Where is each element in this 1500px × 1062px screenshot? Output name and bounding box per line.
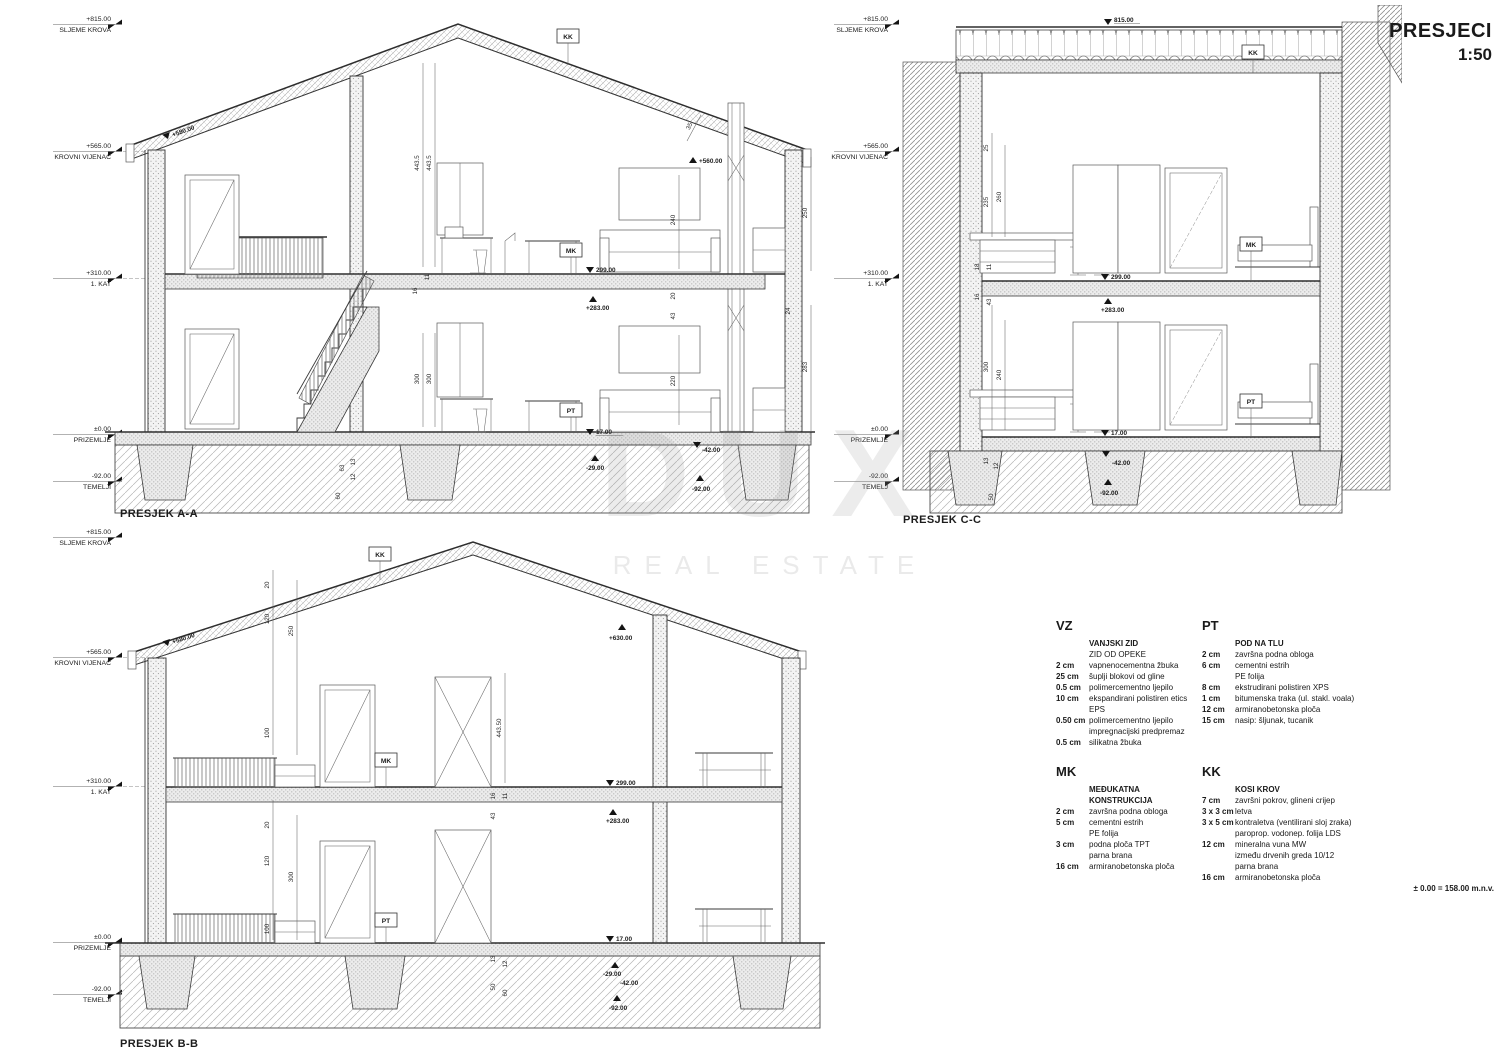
legend-dim xyxy=(1202,638,1235,649)
legend-text: vapnenocementna žbuka xyxy=(1089,660,1202,671)
level-label: TEMELJ xyxy=(862,484,888,491)
bed xyxy=(175,914,275,943)
level-value: +815.00 xyxy=(86,16,111,23)
dim-label: 283 xyxy=(802,361,809,372)
legend-dim: 15 cm xyxy=(1202,715,1235,726)
dim-label: 100 xyxy=(264,923,271,934)
level-label: PRIZEMLJE xyxy=(851,437,889,444)
section-aa: +815.00 SLJEME KROVA +565.00 KROVNI VIJE… xyxy=(45,5,820,522)
title-block: PRESJECI 1:50 xyxy=(1389,20,1492,65)
legend-block-kk: KK KOSI KROV 7 cmzavršni pokrov, glineni… xyxy=(1202,764,1384,883)
dim-label: 100 xyxy=(264,727,271,738)
dim-label: 250 xyxy=(288,625,295,636)
aa-chimney xyxy=(728,103,744,437)
wall-panel xyxy=(619,168,700,220)
dim-label: 235 xyxy=(983,196,990,207)
tag-kk: KK xyxy=(1248,50,1258,57)
legend-dim xyxy=(1056,649,1089,660)
dim-label: 12 xyxy=(993,462,1000,469)
dim-label: 11 xyxy=(502,792,509,799)
spot-elevation: +283.00 xyxy=(606,818,630,825)
spot-elevation: 815.00 xyxy=(1114,17,1134,24)
level-label: 1. KAT xyxy=(868,281,888,288)
level-label: SLJEME KROVA xyxy=(59,27,111,34)
legend-text: ekspandirani polistiren etics EPS xyxy=(1089,693,1202,715)
dim-label: 43 xyxy=(490,812,497,819)
dim-label: 11 xyxy=(424,273,431,280)
glazed-door xyxy=(435,830,491,943)
spot-elevation: -92.00 xyxy=(1100,490,1119,497)
sofa xyxy=(600,390,720,432)
cc-roof-tiles xyxy=(956,30,1342,60)
dim-label: 443.5 xyxy=(426,155,433,171)
legend-text: završni pokrov, glineni crijep xyxy=(1235,795,1384,806)
dim-label: 220 xyxy=(670,375,677,386)
legend-text: ZID OD OPEKE xyxy=(1089,649,1202,660)
material-legend: VZ VANJSKI ZID ZID OD OPEKE 2 cmvapnenoc… xyxy=(1056,618,1384,883)
legend-text: letva xyxy=(1235,806,1384,817)
legend-text: parna brana xyxy=(1235,861,1384,872)
sheet-title: PRESJECI xyxy=(1389,20,1492,43)
dim-label: 443.50 xyxy=(496,718,503,737)
legend-dim: 12 cm xyxy=(1202,704,1235,715)
table xyxy=(695,753,773,787)
legend-dim: 7 cm xyxy=(1202,795,1235,806)
legend-dim: 25 cm xyxy=(1056,671,1089,682)
stool xyxy=(470,409,487,432)
legend-dim: 2 cm xyxy=(1056,806,1089,817)
legend-dim: 12 cm xyxy=(1202,839,1235,850)
dim-label: 63 xyxy=(339,464,346,471)
legend-text: bitumenska traka (ul. stakl. voala) xyxy=(1235,693,1384,704)
aa-roof xyxy=(126,24,811,167)
dim-label: 60 xyxy=(335,492,342,499)
spot-elevation: 299.00 xyxy=(596,267,616,274)
spot-elevation: 17.00 xyxy=(1111,430,1127,437)
level-label: KROVNI VIJENAC xyxy=(54,154,111,161)
stool xyxy=(470,250,487,273)
tag-mk: MK xyxy=(566,248,576,255)
dim-label: 16 xyxy=(412,287,419,294)
bed xyxy=(175,758,275,787)
legend-dim: 3 cm xyxy=(1056,839,1089,850)
dim-label: 43 xyxy=(670,312,677,319)
legend-text: kontraletva (ventilirani sloj zraka) xyxy=(1235,817,1384,828)
legend-text: podna ploča TPT xyxy=(1089,839,1202,850)
bb-furniture-upper xyxy=(173,677,773,787)
spot-elevation: -42.00 xyxy=(620,980,639,987)
legend-dim: 3 x 3 cm xyxy=(1202,806,1235,817)
cc-furniture-upper xyxy=(970,165,1320,275)
dim-label: 25 xyxy=(983,144,990,151)
legend-text: paroprop. vodonep. folija LDS xyxy=(1235,828,1384,839)
legend-dim xyxy=(1056,726,1089,737)
legend-text: šuplji blokovi od gline xyxy=(1089,671,1202,682)
dim-label: 16 xyxy=(490,792,497,799)
legend-dim: 1 cm xyxy=(1202,693,1235,704)
legend-dim: 0.5 cm xyxy=(1056,682,1089,693)
level-value: +310.00 xyxy=(86,270,111,277)
dim-label: 43 xyxy=(986,298,993,305)
cc-roof: 815.00 xyxy=(956,17,1342,73)
legend-text: između drvenih greda 10/12 xyxy=(1235,850,1384,861)
spot-elevation: -92.00 xyxy=(609,1005,628,1012)
tall-cabinet xyxy=(1073,322,1118,430)
sofa xyxy=(600,230,720,272)
legend-text: mineralna vuna MW xyxy=(1235,839,1384,850)
table xyxy=(695,909,773,943)
dim-label: 300 xyxy=(426,373,433,384)
tag-mk: MK xyxy=(381,758,391,765)
sheet-scale: 1:50 xyxy=(1389,45,1492,65)
legend-dim: 10 cm xyxy=(1056,693,1089,715)
dim-label: 20 xyxy=(670,292,677,299)
legend-text: ekstrudirani polistiren XPS xyxy=(1235,682,1384,693)
level-value: ±0.00 xyxy=(871,426,888,433)
dim-label: 13 xyxy=(350,458,357,465)
section-caption: PRESJEK B-B xyxy=(120,1038,198,1050)
dim-label: 120 xyxy=(264,855,271,866)
cc-furniture-ground xyxy=(970,322,1320,432)
legend-dim xyxy=(1056,784,1089,806)
dim-label: 13 xyxy=(983,457,990,464)
dim-label: 240 xyxy=(996,369,1003,380)
legend-dim xyxy=(1202,861,1235,872)
legend-block-vz: VZ VANJSKI ZID ZID OD OPEKE 2 cmvapnenoc… xyxy=(1056,618,1202,748)
legend-dim xyxy=(1202,784,1235,795)
legend-code: KK xyxy=(1202,764,1384,779)
legend-code: MK xyxy=(1056,764,1202,779)
dim-label: 12 xyxy=(350,473,357,480)
bb-furniture-ground xyxy=(173,830,773,943)
level-value: +565.00 xyxy=(86,143,111,150)
legend-text: POD NA TLU xyxy=(1235,638,1384,649)
level-value: -92.00 xyxy=(92,986,111,993)
spot-elevation: 299.00 xyxy=(1111,274,1131,281)
section-cc: +815.00 SLJEME KROVA +565.00 KROVNI VIJE… xyxy=(830,5,1402,527)
level-value: -92.00 xyxy=(92,473,111,480)
tag-kk: KK xyxy=(375,552,385,559)
legend-text: cementni estrih xyxy=(1235,660,1384,671)
tag-pt: PT xyxy=(567,408,575,415)
legend-dim xyxy=(1202,850,1235,861)
spot-elevation: -29.00 xyxy=(586,465,605,472)
level-label: KROVNI VIJENAC xyxy=(54,660,111,667)
legend-dim: 2 cm xyxy=(1056,660,1089,671)
dim-label: 11 xyxy=(986,263,993,270)
glazed-door xyxy=(435,677,491,787)
legend-dim: 0.5 cm xyxy=(1056,737,1089,748)
legend-dim: 2 cm xyxy=(1202,649,1235,660)
legend-block-pt: PT POD NA TLU 2 cmzavršna podna obloga 6… xyxy=(1202,618,1384,748)
level-value: -92.00 xyxy=(869,473,888,480)
dim-label: 300 xyxy=(983,361,990,372)
legend-text: PE folija xyxy=(1235,671,1384,682)
legend-text: nasip: šljunak, tucanik xyxy=(1235,715,1384,726)
legend-text: armiranobetonska ploča xyxy=(1235,872,1384,883)
legend-text: završna podna obloga xyxy=(1089,806,1202,817)
spot-elevation: -42.00 xyxy=(702,447,721,454)
tag-pt: PT xyxy=(1247,399,1255,406)
dim-label: 260 xyxy=(996,191,1003,202)
aa-level-labels: +815.00 SLJEME KROVA +565.00 KROVNI VIJE… xyxy=(53,16,145,491)
level-label: KROVNI VIJENAC xyxy=(831,154,888,161)
spot-elevation: 299.00 xyxy=(616,780,636,787)
legend-text: impregnacijski predpremaz xyxy=(1089,726,1202,737)
section-bb: +815.00 SLJEME KROVA +565.00 KROVNI VIJE… xyxy=(45,525,835,1062)
legend-text: završna podna obloga xyxy=(1235,649,1384,660)
spot-elevation: +560.00 xyxy=(699,158,723,165)
dim-label: 24 xyxy=(785,307,792,314)
cc-tags: KK MK PT xyxy=(1240,45,1264,437)
level-label: PRIZEMLJE xyxy=(74,437,112,444)
level-value: ±0.00 xyxy=(94,934,111,941)
legend-text: PE folija xyxy=(1089,828,1202,839)
level-label: SLJEME KROVA xyxy=(836,27,888,34)
dim-label: 250 xyxy=(802,207,809,218)
legend-dim: 16 cm xyxy=(1056,861,1089,872)
legend-dim: 16 cm xyxy=(1202,872,1235,883)
spot-elevation: -42.00 xyxy=(1112,460,1131,467)
legend-block-mk: MK MEĐUKATNA KONSTRUKCIJA 2 cmzavršna po… xyxy=(1056,764,1202,883)
level-value: +565.00 xyxy=(86,649,111,656)
spot-elevation: -92.00 xyxy=(692,486,711,493)
level-label: SLJEME KROVA xyxy=(59,540,111,547)
legend-dim: 0.50 cm xyxy=(1056,715,1089,726)
drawing-sheet: +815.00 SLJEME KROVA +565.00 KROVNI VIJE… xyxy=(0,0,1500,1062)
spot-elevation: 17.00 xyxy=(596,429,612,436)
dim-label: 20 xyxy=(264,581,271,588)
dim-label: 12 xyxy=(502,960,509,967)
legend-dim xyxy=(1202,671,1235,682)
bb-roof xyxy=(128,542,806,669)
legend-text: VANJSKI ZID xyxy=(1089,638,1202,649)
dim-label: 300 xyxy=(414,373,421,384)
spot-elevation: +283.00 xyxy=(586,305,610,312)
legend-dim: 3 x 5 cm xyxy=(1202,817,1235,828)
legend-dim: 6 cm xyxy=(1202,660,1235,671)
spot-elevation: 17.00 xyxy=(616,936,632,943)
level-label: TEMELJI xyxy=(83,484,111,491)
level-value: +310.00 xyxy=(86,778,111,785)
legend-dim xyxy=(1056,828,1089,839)
dim-label: 443.5 xyxy=(414,155,421,171)
level-value: +815.00 xyxy=(86,529,111,536)
legend-dim xyxy=(1056,850,1089,861)
dim-label: 240 xyxy=(670,214,677,225)
dim-label: 16 xyxy=(974,293,981,300)
dim-label: 120 xyxy=(264,613,271,624)
section-caption: PRESJEK A-A xyxy=(120,508,198,520)
tag-mk: MK xyxy=(1246,242,1256,249)
legend-dim: 5 cm xyxy=(1056,817,1089,828)
aa-tags: KK MK PT xyxy=(557,29,582,432)
legend-text: parna brana xyxy=(1089,850,1202,861)
tall-cabinet xyxy=(1118,165,1160,273)
dim-label: 18 xyxy=(974,263,981,270)
chair xyxy=(505,233,515,273)
bb-level-labels: +815.00 SLJEME KROVA +565.00 KROVNI VIJE… xyxy=(53,529,145,1004)
legend-text: polimercementno ljepilo xyxy=(1089,715,1202,726)
armchair xyxy=(753,388,785,432)
legend-text: armiranobetonska ploča xyxy=(1235,704,1384,715)
spot-elevation: -29.00 xyxy=(603,971,622,978)
level-label: TEMELJI xyxy=(83,997,111,1004)
tag-kk: KK xyxy=(563,34,573,41)
level-value: +310.00 xyxy=(863,270,888,277)
spot-elevation: +283.00 xyxy=(1101,307,1125,314)
tall-cabinet xyxy=(1118,322,1160,430)
legend-text: polimercementno ljepilo xyxy=(1089,682,1202,693)
legend-text: armiranobetonska ploča xyxy=(1089,861,1202,872)
dim-label: 60 xyxy=(502,989,509,996)
datum-note: ± 0.00 = 158.00 m.n.v. xyxy=(1388,884,1494,893)
cc-level-labels: +815.00 SLJEME KROVA +565.00 KROVNI VIJE… xyxy=(831,16,899,491)
legend-text: cementni estrih xyxy=(1089,817,1202,828)
level-label: 1. KAT xyxy=(91,789,111,796)
section-caption: PRESJEK C-C xyxy=(903,514,981,526)
spot-elevation: +630.00 xyxy=(609,635,633,642)
tag-pt: PT xyxy=(382,918,390,925)
legend-dim: 8 cm xyxy=(1202,682,1235,693)
legend-dim xyxy=(1056,638,1089,649)
legend-text: MEĐUKATNA KONSTRUKCIJA xyxy=(1089,784,1202,806)
dim-label: 13 xyxy=(490,955,497,962)
legend-text: KOSI KROV xyxy=(1235,784,1384,795)
aa-furniture-ground xyxy=(185,323,785,432)
level-label: 1. KAT xyxy=(91,281,111,288)
level-value: +565.00 xyxy=(863,143,888,150)
legend-dim xyxy=(1202,828,1235,839)
dim-label: 50 xyxy=(988,493,995,500)
wall-panel xyxy=(619,326,700,373)
dim-label: 50 xyxy=(490,983,497,990)
level-value: +815.00 xyxy=(863,16,888,23)
level-label: PRIZEMLJE xyxy=(74,945,112,952)
dim-label: 300 xyxy=(288,871,295,882)
legend-code: VZ xyxy=(1056,618,1202,633)
tall-cabinet xyxy=(1073,165,1118,273)
dim-label: 20 xyxy=(264,821,271,828)
armchair xyxy=(753,228,785,272)
legend-text: silikatna žbuka xyxy=(1089,737,1202,748)
legend-code: PT xyxy=(1202,618,1384,633)
